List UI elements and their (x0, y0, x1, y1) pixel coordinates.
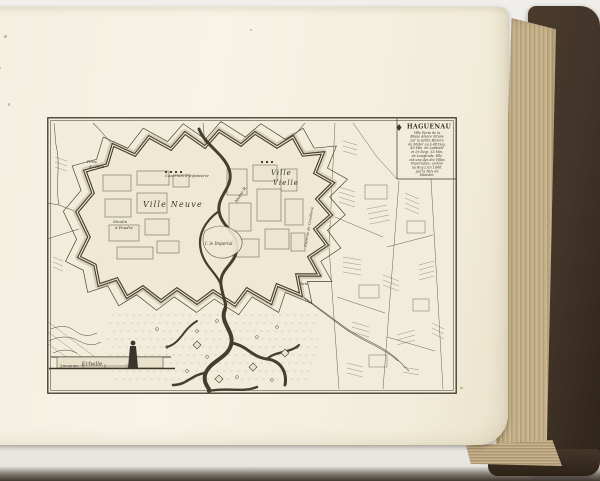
map-plate: HAGUENAU Ville Forte de la Basse Alsace … (47, 117, 457, 394)
map-title: HAGUENAU (407, 124, 452, 131)
photo-of-open-atlas: HAGUENAU Ville Forte de la Basse Alsace … (0, 0, 600, 481)
map-engraving: HAGUENAU Ville Forte de la Basse Alsace … (47, 117, 457, 394)
foxing-spot (0, 67, 1, 69)
label-moulin-1: Moulin (112, 219, 128, 224)
label-moulin-2: à Poudre (115, 225, 134, 230)
label-ville-vielle-2: Vielle (273, 179, 299, 187)
label-isle-imperial: I. le Imperial (204, 241, 233, 246)
label-porte-du-rhin-2: du Rhin (89, 164, 105, 169)
label-porte-south: Porte (298, 282, 308, 286)
foxing-spot (250, 29, 252, 31)
label-scale-values: 50 100 300 (63, 364, 78, 368)
label-casernes-infanterie: Casernes d'Infanterie (165, 173, 209, 178)
foxing-spot (4, 35, 7, 38)
label-echelle: Echelle (81, 362, 103, 368)
foxing-spot (460, 387, 463, 389)
label-ville-vielle-1: Ville (271, 169, 292, 177)
label-ville-neuve: Ville Neuve (143, 200, 203, 209)
title-description-line: Munster. (419, 173, 435, 177)
foxing-spot (8, 103, 10, 106)
